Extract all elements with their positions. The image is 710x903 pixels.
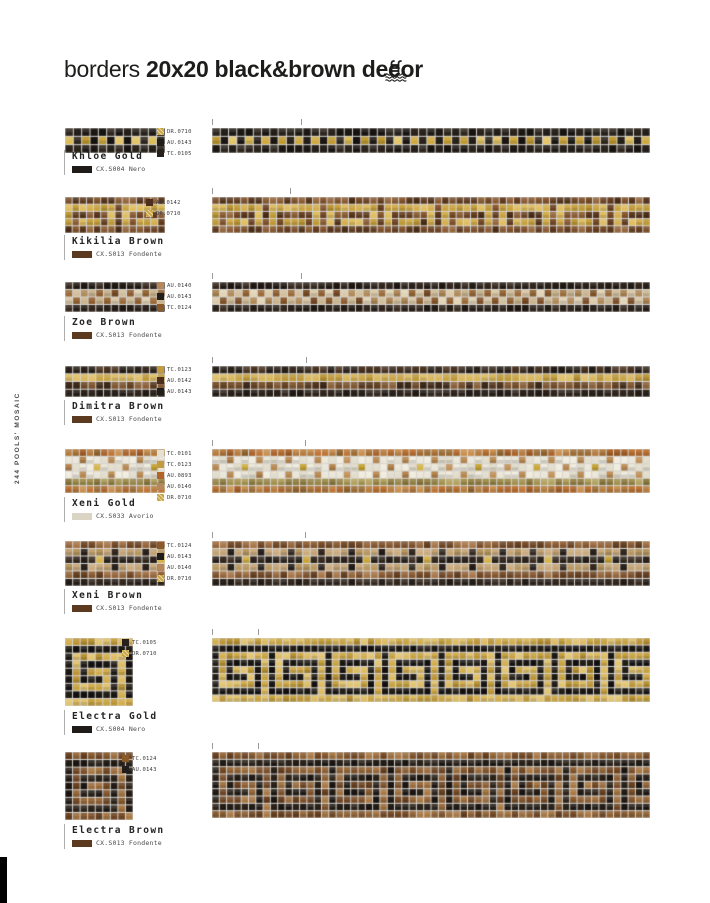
- tile-color-chip: [157, 450, 164, 457]
- tile-color-chip: [157, 575, 164, 582]
- tile-color-chip: [122, 639, 129, 646]
- pool-ladder-icon: [384, 59, 408, 82]
- product-code: CX.S013 Fondente: [96, 604, 162, 612]
- legend-entry: AU.0140: [157, 280, 192, 291]
- product-code-row: CX.S004 Nero: [72, 725, 157, 733]
- crop-tick: [305, 532, 306, 538]
- tile-color-chip: [157, 282, 164, 289]
- tile-color-code: TC.0105: [167, 151, 192, 157]
- tile-color-code: AU.0140: [167, 283, 192, 289]
- base-color-chip: [72, 251, 92, 258]
- legend-entry: AU.0143: [157, 551, 192, 562]
- tile-color-chip: [157, 377, 164, 384]
- legend-entry: TC.0105: [122, 637, 157, 648]
- page-edge-bar: [0, 857, 7, 903]
- tile-color-code: AU.0143: [167, 389, 192, 395]
- product-code-row: CX.S013 Fondente: [72, 331, 162, 339]
- base-color-chip: [72, 416, 92, 423]
- legend-entry: TC.0101: [157, 448, 192, 459]
- page-title: borders 20x20 black&brown decor: [64, 56, 423, 83]
- tile-color-chip: [157, 293, 164, 300]
- color-legend: AU.0142DR.0710: [146, 197, 181, 219]
- tile-color-code: DR.0710: [167, 495, 192, 501]
- legend-entry: TC.0105: [157, 148, 192, 159]
- color-legend: TC.0101TC.0123AU.0893AU.0140DR.0710: [157, 448, 192, 503]
- tile-color-code: AU.0143: [132, 767, 157, 773]
- swatch-image: [65, 282, 165, 312]
- tile-color-chip: [157, 139, 164, 146]
- crop-tick: [212, 357, 213, 363]
- legend-entry: TC.0123: [157, 364, 192, 375]
- legend-entry: DR.0710: [122, 648, 157, 659]
- legend-entry: DR.0710: [157, 573, 192, 584]
- border-strip-image: [212, 197, 650, 233]
- product-name: Xeni Brown: [72, 590, 162, 601]
- legend-entry: DR.0710: [157, 492, 192, 503]
- crop-tick: [212, 629, 213, 635]
- legend-entry: DR.0710: [146, 208, 181, 219]
- border-strip-image: [212, 282, 650, 312]
- product-code: CX.S004 Nero: [96, 725, 145, 733]
- crop-tick: [258, 629, 259, 635]
- product-info: Zoe Brown CX.S013 Fondente: [64, 316, 162, 341]
- catalog-page: borders 20x20 black&brown decor 244 POOL…: [0, 0, 710, 903]
- tile-color-chip: [146, 199, 153, 206]
- border-strip-image: [212, 638, 650, 702]
- crop-tick: [212, 273, 213, 279]
- product-code-row: CX.S013 Fondente: [72, 604, 162, 612]
- tile-color-code: AU.0893: [167, 473, 192, 479]
- product-name: Kikilia Brown: [72, 236, 165, 247]
- base-color-chip: [72, 726, 92, 733]
- tile-color-code: DR.0710: [132, 651, 157, 657]
- product-name: Electra Gold: [72, 711, 157, 722]
- crop-tick: [212, 532, 213, 538]
- page-title-regular: borders: [64, 56, 140, 82]
- product-code-row: CX.S004 Nero: [72, 165, 145, 173]
- tile-color-code: DR.0710: [167, 129, 192, 135]
- tile-color-chip: [157, 461, 164, 468]
- tile-color-chip: [146, 210, 153, 217]
- tile-color-code: TC.0124: [167, 543, 192, 549]
- color-legend: TC.0105DR.0710: [122, 637, 157, 659]
- legend-entry: AU.0893: [157, 470, 192, 481]
- tile-color-code: AU.0143: [167, 140, 192, 146]
- legend-entry: AU.0140: [157, 562, 192, 573]
- crop-tick: [301, 273, 302, 279]
- border-strip-image: [212, 752, 650, 818]
- crop-tick: [212, 119, 213, 125]
- product-name: Electra Brown: [72, 825, 165, 836]
- tile-color-code: AU.0142: [167, 378, 192, 384]
- border-strip-image: [212, 449, 650, 493]
- product-code: CX.S013 Fondente: [96, 839, 162, 847]
- tile-color-code: AU.0140: [167, 484, 192, 490]
- crop-tick: [212, 440, 213, 446]
- crop-tick: [212, 743, 213, 749]
- product-info: Khloe Gold CX.S004 Nero: [64, 150, 145, 175]
- legend-entry: AU.0143: [157, 291, 192, 302]
- legend-entry: TC.0123: [157, 459, 192, 470]
- border-strip-image: [212, 366, 650, 397]
- crop-tick: [212, 188, 213, 194]
- tile-color-chip: [157, 388, 164, 395]
- color-legend: TC.0123AU.0142AU.0143: [157, 364, 192, 397]
- product-code: CX.S013 Fondente: [96, 250, 162, 258]
- product-code-row: CX.S013 Fondente: [72, 839, 165, 847]
- tile-color-code: AU.0140: [167, 565, 192, 571]
- side-page-label: 244 POOLS' MOSAIC: [14, 348, 21, 484]
- tile-color-code: DR.0710: [167, 576, 192, 582]
- tile-color-code: TC.0123: [167, 462, 192, 468]
- border-strip-image: [212, 128, 650, 153]
- legend-entry: AU.0143: [122, 764, 157, 775]
- product-code: CX.S013 Fondente: [96, 415, 162, 423]
- tile-color-code: TC.0124: [132, 756, 157, 762]
- swatch-image: [65, 449, 165, 493]
- tile-color-chip: [157, 472, 164, 479]
- legend-entry: TC.0124: [157, 540, 192, 551]
- color-legend: AU.0140AU.0143TC.0124: [157, 280, 192, 313]
- product-name: Khloe Gold: [72, 151, 145, 162]
- product-code-row: CX.S013 Fondente: [72, 415, 165, 423]
- tile-color-chip: [157, 128, 164, 135]
- tile-color-code: TC.0124: [167, 305, 192, 311]
- tile-color-code: AU.0142: [156, 200, 181, 206]
- color-legend: TC.0124AU.0143: [122, 753, 157, 775]
- tile-color-code: AU.0143: [167, 554, 192, 560]
- color-legend: TC.0124AU.0143AU.0140DR.0710: [157, 540, 192, 584]
- product-name: Dimitra Brown: [72, 401, 165, 412]
- tile-color-chip: [157, 542, 164, 549]
- product-name: Zoe Brown: [72, 317, 162, 328]
- tile-color-chip: [157, 553, 164, 560]
- product-code-row: CX.S013 Fondente: [72, 250, 165, 258]
- base-color-chip: [72, 605, 92, 612]
- tile-color-chip: [122, 766, 129, 773]
- product-code-row: CX.S033 Avorio: [72, 512, 154, 520]
- base-color-chip: [72, 332, 92, 339]
- tile-color-code: AU.0143: [167, 294, 192, 300]
- product-code: CX.S004 Nero: [96, 165, 145, 173]
- tile-color-code: DR.0710: [156, 211, 181, 217]
- legend-entry: AU.0142: [157, 375, 192, 386]
- product-name: Xeni Gold: [72, 498, 154, 509]
- product-info: Kikilia Brown CX.S013 Fondente: [64, 235, 165, 260]
- product-info: Electra Gold CX.S004 Nero: [64, 710, 157, 735]
- crop-tick: [305, 440, 306, 446]
- tile-color-chip: [122, 755, 129, 762]
- product-info: Dimitra Brown CX.S013 Fondente: [64, 400, 165, 425]
- tile-color-chip: [157, 304, 164, 311]
- swatch-image: [65, 541, 165, 586]
- legend-entry: AU.0143: [157, 137, 192, 148]
- tile-color-chip: [157, 150, 164, 157]
- legend-entry: TC.0124: [122, 753, 157, 764]
- product-info: Xeni Brown CX.S013 Fondente: [64, 589, 162, 614]
- product-info: Xeni Gold CX.S033 Avorio: [64, 497, 154, 522]
- base-color-chip: [72, 513, 92, 520]
- product-info: Electra Brown CX.S013 Fondente: [64, 824, 165, 849]
- tile-color-code: TC.0101: [167, 451, 192, 457]
- tile-color-chip: [157, 483, 164, 490]
- crop-tick: [301, 119, 302, 125]
- page-title-bold: 20x20 black&brown decor: [146, 56, 423, 82]
- border-strip-image: [212, 541, 650, 586]
- tile-color-chip: [157, 494, 164, 501]
- legend-entry: TC.0124: [157, 302, 192, 313]
- legend-entry: AU.0140: [157, 481, 192, 492]
- product-code: CX.S013 Fondente: [96, 331, 162, 339]
- base-color-chip: [72, 840, 92, 847]
- crop-tick: [306, 357, 307, 363]
- crop-tick: [290, 188, 291, 194]
- product-code: CX.S033 Avorio: [96, 512, 154, 520]
- tile-color-code: TC.0105: [132, 640, 157, 646]
- legend-entry: AU.0143: [157, 386, 192, 397]
- tile-color-chip: [157, 366, 164, 373]
- tile-color-chip: [157, 564, 164, 571]
- legend-entry: AU.0142: [146, 197, 181, 208]
- tile-color-chip: [122, 650, 129, 657]
- tile-color-code: TC.0123: [167, 367, 192, 373]
- crop-tick: [258, 743, 259, 749]
- base-color-chip: [72, 166, 92, 173]
- color-legend: DR.0710AU.0143TC.0105: [157, 126, 192, 159]
- legend-entry: DR.0710: [157, 126, 192, 137]
- swatch-image: [65, 366, 165, 397]
